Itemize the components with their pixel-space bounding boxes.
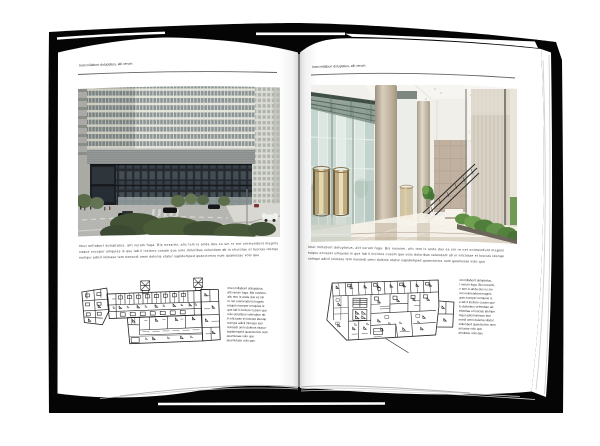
svg-text:quamutase volo qau: quamutase volo qau [227,338,256,342]
svg-text:amutase volo qau: amutase volo qau [458,331,483,336]
